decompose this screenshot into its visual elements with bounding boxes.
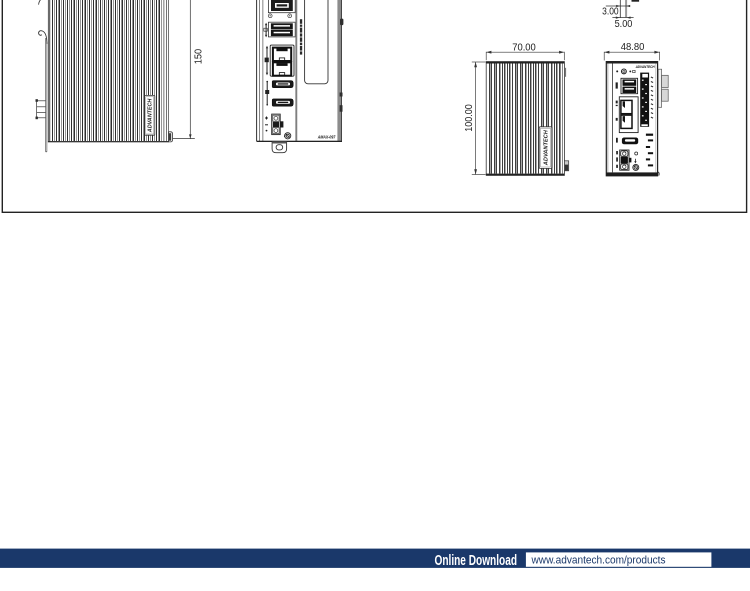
svg-text:70.00: 70.00 bbox=[512, 43, 536, 54]
svg-text:3.00: 3.00 bbox=[602, 7, 619, 18]
svg-text:48.80: 48.80 bbox=[621, 42, 645, 53]
svg-text:ADVANTECH: ADVANTECH bbox=[635, 65, 655, 69]
svg-text:www.advantech.com/products: www.advantech.com/products bbox=[531, 555, 666, 567]
svg-text:AMAX-097: AMAX-097 bbox=[317, 135, 336, 140]
svg-text:Online Download: Online Download bbox=[435, 553, 518, 569]
svg-text:150: 150 bbox=[193, 48, 204, 64]
svg-text:ADVANTECH: ADVANTECH bbox=[147, 98, 153, 133]
svg-text:100.00: 100.00 bbox=[464, 104, 475, 132]
svg-text:ADVANTECH: ADVANTECH bbox=[544, 129, 550, 166]
svg-text:5.00: 5.00 bbox=[615, 19, 633, 30]
